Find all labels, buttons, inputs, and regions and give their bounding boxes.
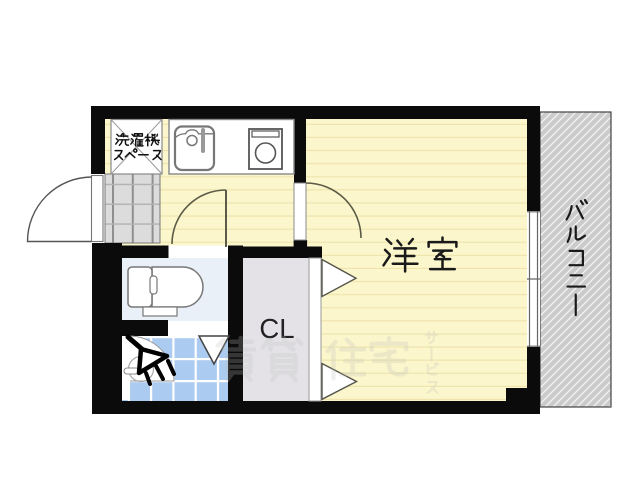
svg-text:CL: CL [259, 313, 294, 344]
